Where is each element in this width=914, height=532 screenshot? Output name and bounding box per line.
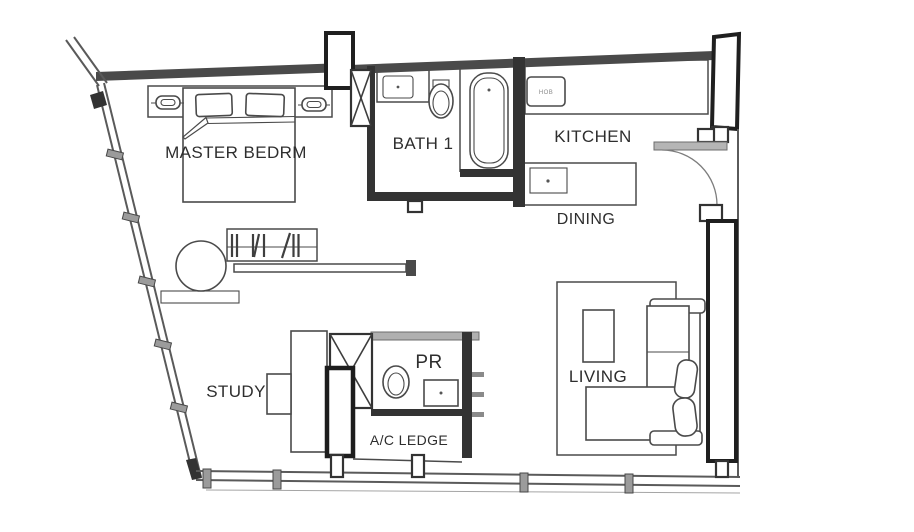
- hatched-rack: [227, 229, 317, 261]
- pr-right-wall: [462, 332, 472, 458]
- sink-drain: [546, 179, 549, 182]
- mullion: [170, 402, 187, 413]
- bath-door-tab: [408, 201, 422, 212]
- study-chair: [267, 374, 291, 414]
- pr-basin-drain: [440, 392, 443, 395]
- door-frame-lower: [700, 205, 722, 221]
- top-wall-bedroom: [96, 63, 345, 81]
- round-table: [176, 241, 226, 291]
- room-label-ac-ledge: A/C LEDGE: [370, 432, 448, 448]
- vanity-counter: [377, 70, 429, 102]
- study-column-stub: [331, 455, 343, 477]
- mullion: [273, 470, 281, 489]
- bath1-room: [377, 70, 508, 168]
- room-label-study: STUDY: [206, 382, 266, 401]
- door-frame-upper2: [698, 129, 714, 142]
- pillow-right: [246, 93, 285, 116]
- hatch-marks: [232, 233, 299, 258]
- kitchen-counter-lower: [518, 163, 636, 205]
- entrance-door: [654, 142, 727, 221]
- top-wall-kitchen: [350, 51, 714, 74]
- right-wall: [708, 221, 736, 461]
- tub-drain: [488, 89, 491, 92]
- study-column: [327, 368, 353, 456]
- tub-niche-bottom: [460, 169, 513, 177]
- ac-wall-stub: [412, 455, 424, 477]
- nightstand-left: [151, 96, 184, 109]
- side-ledge: [161, 291, 239, 303]
- kitchen-left-wall: [513, 57, 525, 207]
- room-label-bath1: BATH 1: [393, 134, 454, 153]
- hob: HOB: [527, 77, 565, 106]
- rail-end-cap: [406, 260, 416, 276]
- bath-duct: [351, 70, 371, 126]
- coffee-table: [583, 310, 614, 362]
- door-leaf: [654, 142, 727, 150]
- ac-louvres: [472, 372, 484, 417]
- right-wall-stub: [716, 461, 728, 477]
- mullion: [625, 474, 633, 493]
- room-label-living: LIVING: [569, 367, 627, 386]
- scanned-floor-plan-page: HOB: [0, 0, 914, 532]
- floor-plan: HOB: [0, 0, 914, 532]
- column-top-right: [712, 34, 739, 129]
- mullion: [203, 469, 211, 488]
- pr-toilet: [383, 366, 409, 398]
- pr-bottom-wall: [371, 409, 463, 416]
- pillow-left: [196, 93, 233, 116]
- study-desk: [291, 331, 327, 452]
- mullion: [154, 339, 171, 350]
- bathtub: [470, 73, 508, 168]
- room-label-pr: PR: [415, 352, 442, 373]
- room-label-dining: DINING: [557, 211, 615, 228]
- interior-walls: [327, 57, 525, 477]
- long-rail: [234, 264, 406, 272]
- study-room: [267, 331, 327, 452]
- room-label-kitchen: KITCHEN: [554, 127, 631, 146]
- toilet: [429, 80, 453, 118]
- nightstand-right: [298, 98, 330, 111]
- table-and-rail: [161, 229, 416, 303]
- wall-cap: [90, 91, 107, 109]
- door-swing-arc: [662, 150, 717, 205]
- bath-bottom-wall: [367, 192, 513, 201]
- column-top-left: [326, 33, 353, 88]
- basin-drain: [397, 86, 400, 89]
- sofa-cushion-2: [672, 397, 698, 437]
- ac-ledge-bottom: [353, 459, 462, 462]
- mullion: [520, 473, 528, 492]
- hob-label: HOB: [539, 90, 553, 96]
- room-label-master-bedroom: MASTER BEDRM: [165, 143, 307, 162]
- bottom-window-wall: [196, 469, 740, 493]
